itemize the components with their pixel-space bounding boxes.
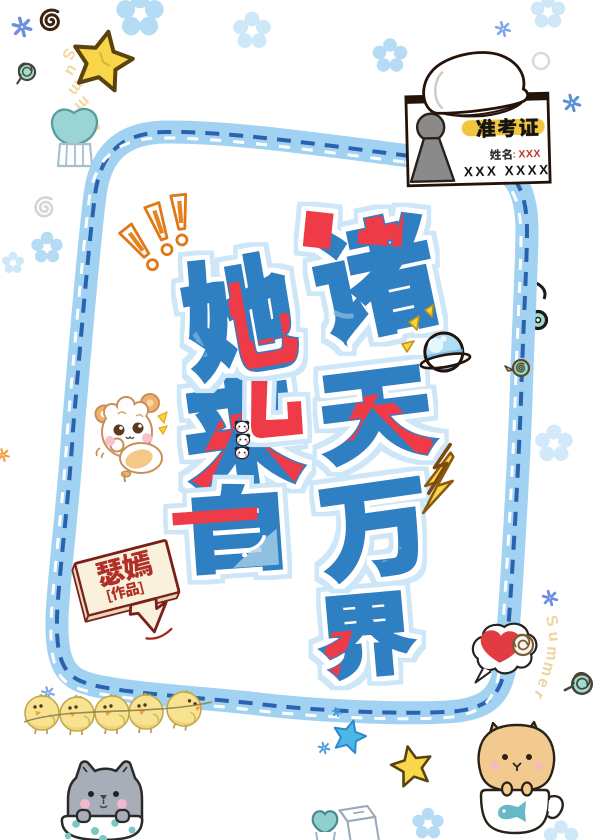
svg-text:m: m: [542, 646, 560, 662]
svg-text:u: u: [545, 631, 563, 642]
svg-text:XXX: XXX: [518, 148, 541, 161]
svg-text:XXX XXXX: XXX XXXX: [464, 162, 551, 179]
svg-text::: :: [512, 150, 516, 161]
